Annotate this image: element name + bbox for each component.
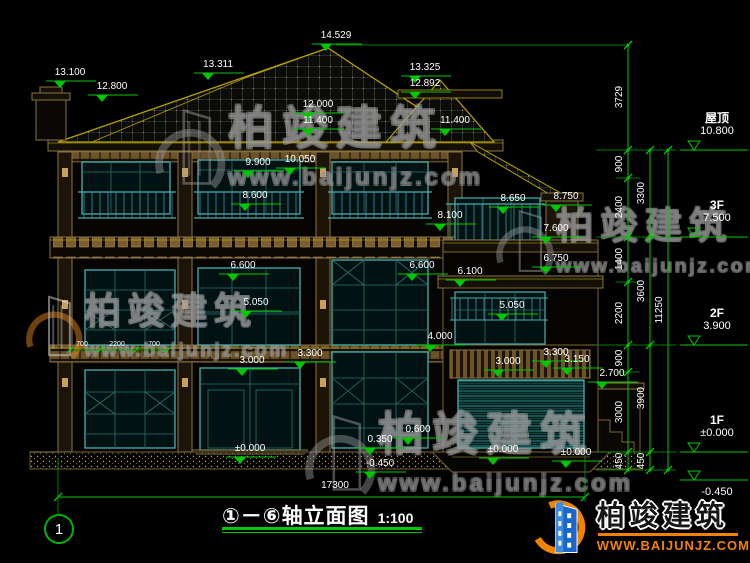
elevation-value: 7.600 <box>543 224 568 234</box>
elevation-value: 13.325 <box>410 63 441 73</box>
elevation-value: 8.750 <box>553 192 578 202</box>
title-underline-thick <box>222 527 422 530</box>
elevation-value: ±0.000 <box>488 445 519 455</box>
elevation-value: 6.600 <box>230 261 255 271</box>
company-logo-brand: 柏竣建筑 <box>597 501 750 531</box>
floor-label: 屋顶 <box>682 112 750 125</box>
dimension-value: 2400 <box>615 196 625 218</box>
elevation-value: 2.700 <box>599 369 624 379</box>
dimension-value: 450 <box>637 453 647 470</box>
company-logo-rule <box>598 533 738 536</box>
company-logo-site: WWW.BAIJUNJZ.COM <box>597 538 750 553</box>
elevation-value: 14.529 <box>321 31 352 41</box>
dimension-value: 3000 <box>615 401 625 423</box>
elevation-value: 11.400 <box>440 116 470 126</box>
dimension-value: 900 <box>615 350 625 367</box>
dimension-value: 450 <box>615 453 625 470</box>
elevation-value: 0.350 <box>367 435 392 445</box>
elevation-value: 9.900 <box>245 158 270 168</box>
floor-label: 2F <box>682 307 750 320</box>
elevation-value: 10.050 <box>285 155 316 165</box>
title-axis-range: ①－⑥ <box>222 505 282 528</box>
title-scale: 1:100 <box>378 510 414 526</box>
drawing-title: ①－⑥轴立面图1:100 <box>222 500 452 530</box>
small-dimension-value: 2200 <box>109 341 125 348</box>
elevation-value: 13.100 <box>55 68 86 78</box>
title-underline-thin <box>222 532 422 533</box>
total-width-dimension: 17300 <box>321 481 349 491</box>
axis-bubble-1: 1 <box>44 514 74 544</box>
axis-number: 1 <box>55 521 63 538</box>
floor-elevation: ±0.000 <box>682 427 750 439</box>
chimney <box>32 87 70 140</box>
elevation-value: 12.892 <box>410 79 441 89</box>
title-name: 轴立面图 <box>282 505 370 528</box>
floor-level: 3F7.500 <box>682 199 750 224</box>
dimension-value: 3729 <box>615 86 625 108</box>
elevation-value: 11.400 <box>303 116 333 126</box>
elevation-value: ±0.000 <box>235 444 266 454</box>
elevation-value: 5.050 <box>243 298 268 308</box>
dimension-value: 3900 <box>637 387 647 409</box>
elevation-value: 3.300 <box>297 349 322 359</box>
dimension-value: 2200 <box>615 302 625 324</box>
dimension-value: 3300 <box>637 182 647 204</box>
elevation-value: 4.000 <box>427 332 452 342</box>
company-logo-icon <box>528 494 591 560</box>
elevation-value: 8.650 <box>500 194 525 204</box>
dimension-value: 900 <box>615 156 625 173</box>
elevation-drawing-canvas: 柏竣建筑 www.baijunjz.com 柏竣建筑 www.baijunjz.… <box>0 0 750 563</box>
elevation-value: 12.800 <box>97 82 128 92</box>
company-logo[interactable]: 柏竣建筑 WWW.BAIJUNJZ.COM <box>528 490 750 563</box>
elevation-value: 3.000 <box>239 356 264 366</box>
elevation-value: 6.100 <box>457 267 482 277</box>
elevation-value: ±0.000 <box>561 448 592 458</box>
elevation-value: 3.000 <box>495 357 520 367</box>
elevation-value: 0.600 <box>405 425 430 435</box>
elevation-value: 8.100 <box>437 211 462 221</box>
annex <box>438 193 603 452</box>
elevation-value: 3.150 <box>564 355 589 365</box>
floor-level: 屋顶10.800 <box>682 112 750 137</box>
floor-label: 3F <box>682 199 750 212</box>
small-dimension-value: 700 <box>148 341 160 348</box>
small-dimension-value: 700 <box>76 341 88 348</box>
elevation-value: 13.311 <box>203 60 233 70</box>
floor-elevation: 10.800 <box>682 125 750 137</box>
elevation-value: -0.450 <box>366 459 394 469</box>
elevation-value: 5.050 <box>499 301 524 311</box>
elevation-value: 6.750 <box>543 254 568 264</box>
dimension-value: 1400 <box>615 248 625 270</box>
elevation-value: 6.600 <box>409 261 434 271</box>
floor-level: 1F±0.000 <box>682 414 750 439</box>
elevation-value: 8.600 <box>242 191 267 201</box>
dimension-value: 11250 <box>655 296 665 323</box>
third-floor-windows <box>82 160 428 214</box>
dimension-value: 3600 <box>637 280 647 302</box>
floor-elevation: 7.500 <box>682 212 750 224</box>
floor-level: 2F3.900 <box>682 307 750 332</box>
floor-elevation: 3.900 <box>682 320 750 332</box>
elevation-value: 12.000 <box>303 100 334 110</box>
floor-label: 1F <box>682 414 750 427</box>
